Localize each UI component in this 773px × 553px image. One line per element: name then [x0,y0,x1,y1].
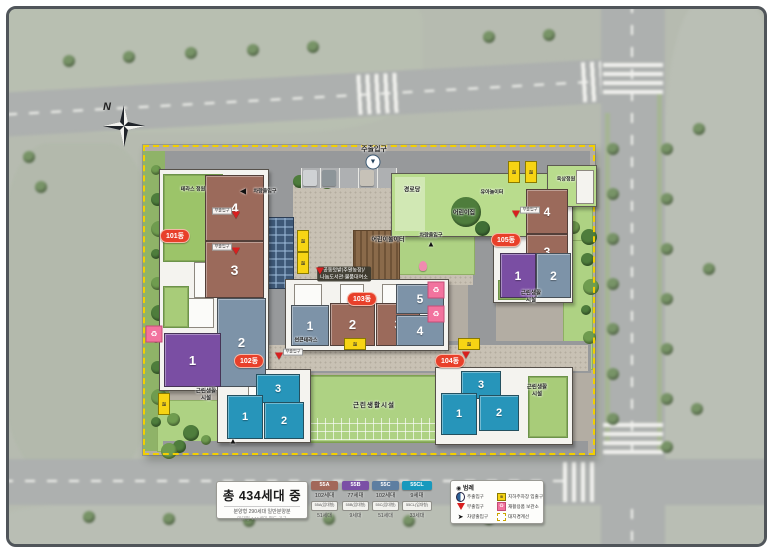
map-label: 공동텃밭(주말농장)/ 나눔도서관·물품대여소 [317,267,371,282]
legend-icon-wrap [456,493,465,500]
unit-type-count: 9세대 [402,491,432,499]
map-legend-box: ◉ 범례 주출입구부출입구➤차량출입구≋지하주차장 입출구♻재활용품 보관소대지… [450,480,544,524]
sub-entrance-label: 부출입구 [212,208,232,215]
sub-entrance-icon [512,211,520,218]
unit-type-legend: 55A102세대55A(임대형)51세대55B77세대55B(임대형)9세대55… [309,481,435,521]
recycle-station-icon: ♻ [428,282,445,299]
map-label: 어린이놀이터 [371,235,404,244]
sub-entrance-icon [232,212,240,219]
unit-type-chip: 55CL [402,481,432,490]
legend-label: 차량출입구 [467,514,488,520]
total-households-box: 총 434세대 중 분양형 290세대 일반분양분 임대형 144세대 별도 공… [216,481,308,519]
total-households: 총 434세대 중 [217,485,307,504]
info-bar: 총 434세대 중 분양형 290세대 일반분양분 임대형 144세대 별도 공… [6,471,603,526]
vehicle-entrance-label: 차량출입구 [419,232,442,239]
unit-type-count: 102세대 [311,491,338,499]
parking-ramp-icon: ≋ [344,338,366,350]
building-label: 101동 [160,229,190,243]
recycle-icon: ♻ [497,502,506,511]
legend-item: ≋지하주차장 입출구 [497,492,543,501]
legend-label: 대지경계선 [508,514,529,520]
unit-type-sub-count: 9세대 [342,512,369,519]
vehicle-entrance-icon: ▲ [427,240,435,249]
map-label: 근린생활 시설 [527,384,547,397]
legend-item: ♻재활용품 보관소 [497,502,539,511]
building-unit: 1 [227,395,263,439]
vehicle-entrance-icon: ▲ [229,437,237,446]
building-label: 103동 [347,292,377,306]
legend-label: 재활용품 보관소 [508,504,539,510]
unit-type-count: 77세대 [342,491,369,499]
unit-type-chip: 55A [311,481,338,490]
unit-type-sub-count: 51세대 [311,512,338,519]
map-label: 옥상정원 [557,176,575,183]
sub-entrance-icon [232,248,240,255]
legend-icon-wrap [456,503,465,510]
unit-type-column: 55A102세대55A(임대형)51세대 [311,481,338,519]
unit-type-chip: 55C [372,481,399,490]
legend-item: ➤차량출입구 [456,512,488,521]
building-unit: 2 [479,395,519,431]
building-label: 102동 [234,354,264,368]
map-label: 주출입구 [361,144,387,154]
buildings-layer: 4321101동312102동12354103동312104동4312105동주… [6,6,767,547]
sub-entrance-label: 부출입구 [520,207,540,214]
map-label: 썬큰테라스 [294,337,317,344]
frame-border: N [6,6,767,547]
legend-icon-wrap: ➤ [456,513,465,520]
legend-title: ◉ 범례 [456,483,474,492]
legend-icon-wrap: ≋ [497,493,506,500]
building-unit: 1 [441,393,477,435]
legend-label: 지하주차장 입출구 [508,494,543,500]
parking-ramp-icon: ≋ [297,230,309,252]
map-label: 경로당 [404,185,421,194]
legend-item: 주출입구 [456,492,484,501]
map-label: 근린생활시설 [353,399,395,409]
sub-entrance-icon [316,268,324,275]
tree [475,221,490,236]
legend-icon-wrap: ♻ [497,503,506,510]
main-entrance-marker: ▼ [366,155,381,170]
vehicle-gate-icon: ➤ [458,513,464,521]
unit-type-column: 55C102세대55C(임대형)51세대 [372,481,399,519]
recycle-station-icon: ♻ [428,306,445,323]
parking-stalls [301,168,397,188]
map-label: 어린이집 [453,208,475,217]
building-label: 105동 [491,233,521,247]
map-label: 유아놀이터 [480,189,503,196]
unit-type-column: 55CL9세대55CL(임대형)33세대 [402,481,432,519]
legend-item: 부출입구 [456,502,484,511]
sub-entrance-label: 부출입구 [283,349,303,356]
unit-type-sub-chip: 55C(임대형) [372,501,399,511]
building-unit: 2 [264,402,304,439]
parking-ramp-icon: ≋ [497,493,506,501]
parking-ramp-icon: ≋ [525,161,537,183]
building-label: 104동 [435,354,465,368]
waterplay-flamingo-icon [419,261,427,271]
boundary-icon [497,513,506,521]
parking-ramp-icon: ≋ [458,338,480,350]
vehicle-entrance-label: 차량출입구 [253,188,276,195]
unit-type-sub-chip: 55CL(임대형) [402,501,432,511]
unit-type-sub-count: 33세대 [402,512,432,519]
unit-type-sub-count: 51세대 [372,512,399,519]
parking-ramp-icon: ≋ [158,393,170,415]
legend-item: 대지경계선 [497,512,529,521]
vehicle-entrance-icon: ◀ [240,187,246,196]
unit-type-column: 55B77세대55B(임대형)9세대 [342,481,369,519]
main-gate-icon [456,492,465,502]
parking-ramp-icon: ≋ [297,252,309,274]
legend-icon-wrap [497,513,506,520]
sub-entrance-label: 부출입구 [212,244,232,251]
map-label: 근린생활 시설 [196,388,216,401]
recycle-station-icon: ♻ [146,326,163,343]
unit-type-sub-chip: 55B(임대형) [342,501,369,511]
map-label: 테라스 정원 [181,186,205,193]
parking-ramp-icon: ≋ [508,161,520,183]
rental-households: 임대형 144세대 별도 공급 [217,516,307,522]
building-unit: 2 [536,253,571,298]
map-label: 근린생활 시설 [521,290,541,303]
unit-type-sub-chip: 55A(임대형) [311,501,338,511]
building-unit: 1 [164,333,221,387]
site-plan-canvas: N [0,0,773,553]
sub-gate-icon [457,503,465,510]
sub-entrance-icon [275,353,283,360]
unit-type-chip: 55B [342,481,369,490]
legend-label: 부출입구 [467,504,484,510]
legend-label: 주출입구 [467,494,484,500]
unit-type-count: 102세대 [372,491,399,499]
